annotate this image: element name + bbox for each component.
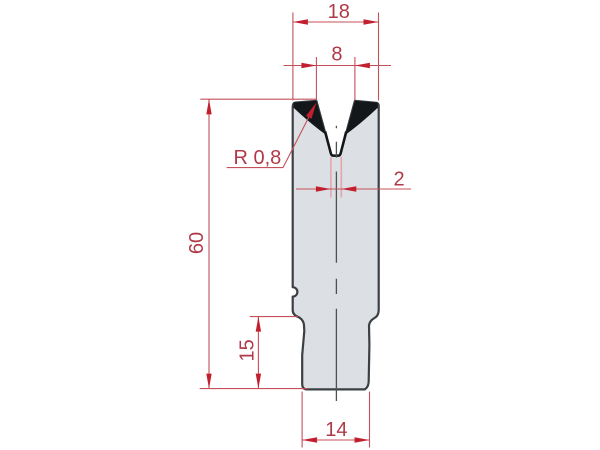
svg-text:R 0,8: R 0,8 [234, 147, 282, 169]
svg-text:60: 60 [186, 232, 208, 254]
svg-text:2: 2 [393, 169, 404, 191]
svg-text:14: 14 [325, 419, 347, 441]
svg-text:8: 8 [331, 43, 342, 65]
svg-text:18: 18 [328, 1, 350, 23]
svg-text:15: 15 [236, 339, 258, 361]
